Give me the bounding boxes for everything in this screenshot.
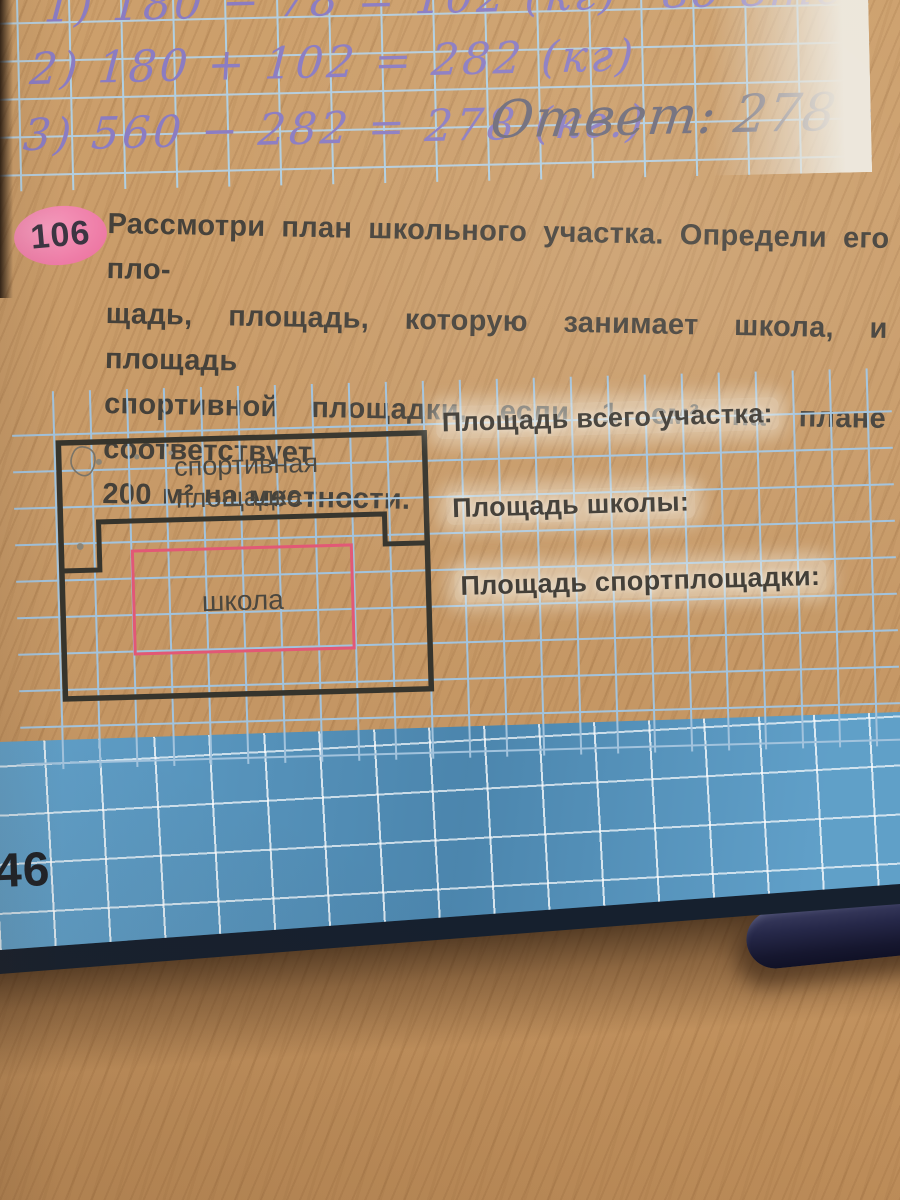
school-plot-plan: спортивная площадка школа (52, 427, 442, 712)
school-label: школа (201, 584, 284, 617)
pencil-dot (168, 451, 173, 456)
answer-field-total-area: Площадь всего участка: (435, 397, 779, 440)
page-number: 46 (0, 842, 51, 899)
task-number-badge: 106 (12, 202, 110, 269)
photo-of-workbook-page: { "handwriting": { "line1": "1) 180 − 78… (0, 0, 900, 1200)
answer-field-sports-area: Площадь спортплощадки: (454, 560, 827, 603)
handwritten-line-1: 1) 180 − 78 = 102 (кг)во втором (42, 0, 872, 33)
answer-field-school-area: Площадь школы: (446, 485, 696, 525)
pencil-dot (96, 459, 102, 465)
sports-ground-boundary (61, 513, 427, 571)
pencil-scribble (71, 446, 96, 476)
handwritten-note: во втором (660, 0, 872, 19)
handwritten-line-2: 2) 180 + 102 = 282 (кг) (28, 31, 638, 95)
sports-ground-label-line2: площадка (175, 480, 303, 514)
handwritten-equation-1: 1) 180 − 78 = 102 (кг) (42, 0, 621, 33)
handwritten-answer: Ответ: 278 кг. (487, 81, 872, 151)
handwritten-solution-section: 1) 180 − 78 = 102 (кг)во втором 2) 180 +… (0, 0, 872, 192)
pencil-dot (134, 454, 139, 459)
problem-text-line: Рассмотри план школьного участка. Опреде… (106, 202, 890, 307)
sports-ground-label-line1: спортивная (174, 448, 319, 482)
handwritten-equation-2: 2) 180 + 102 = 282 (кг) (28, 30, 638, 95)
school-plot-diagram-section: спортивная площадка школа Площадь всего … (11, 368, 900, 770)
pencil-dot (77, 543, 84, 550)
photo-dark-edge (0, 0, 13, 298)
handwritten-equation-3: 3) 560 − 282 = 278 (кг.) (21, 96, 648, 161)
handwritten-line-3: 3) 560 − 282 = 278 (кг.) (21, 97, 648, 161)
